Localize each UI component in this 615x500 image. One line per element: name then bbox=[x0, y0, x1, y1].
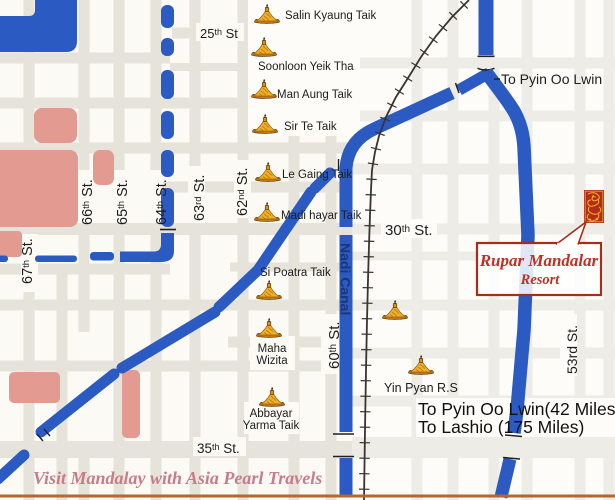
svg-text:Salin Kyaung Taik: Salin Kyaung Taik bbox=[285, 10, 376, 22]
svg-text:Si Poatra Taik: Si Poatra Taik bbox=[260, 267, 331, 279]
svg-text:Le Gaing Taik: Le Gaing Taik bbox=[282, 169, 352, 181]
svg-text:Visit Mandalay with Asia Pearl: Visit Mandalay with Asia Pearl Travels bbox=[33, 468, 322, 488]
svg-text:Sir Te Taik: Sir Te Taik bbox=[284, 121, 337, 133]
svg-text:Man Aung Taik: Man Aung Taik bbox=[277, 89, 352, 101]
svg-text:Madi hayar Taik: Madi hayar Taik bbox=[281, 210, 362, 222]
svg-text:Resort: Resort bbox=[520, 272, 561, 288]
svg-text:Rupar Mandalar: Rupar Mandalar bbox=[479, 251, 599, 270]
svg-text:Yin Pyan R.S: Yin Pyan R.S bbox=[384, 381, 458, 395]
svg-text:Maha: Maha bbox=[258, 343, 287, 355]
svg-text:Yarma Taik: Yarma Taik bbox=[243, 420, 300, 432]
svg-text:Nadi Canal: Nadi Canal bbox=[338, 243, 354, 315]
svg-text:Wizita: Wizita bbox=[256, 355, 288, 367]
svg-text:To Lashio (175 Miles): To Lashio (175 Miles) bbox=[418, 417, 584, 437]
svg-text:To Pyin Oo Lwin(42 Miles): To Pyin Oo Lwin(42 Miles) bbox=[418, 399, 615, 419]
svg-text:Soonloon Yeik Tha: Soonloon Yeik Tha bbox=[258, 61, 354, 73]
svg-text:To Pyin Oo Lwin: To Pyin Oo Lwin bbox=[501, 71, 602, 87]
svg-text:Abbayar: Abbayar bbox=[250, 408, 293, 420]
svg-text:53rd St.: 53rd St. bbox=[564, 325, 580, 374]
